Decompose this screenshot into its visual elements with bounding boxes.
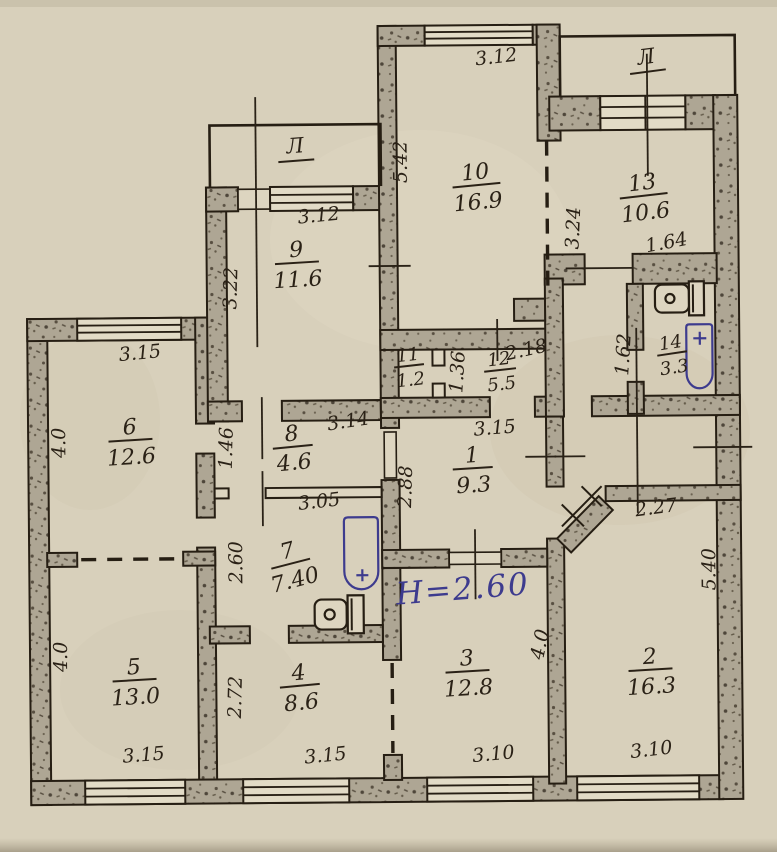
svg-text:Л: Л bbox=[284, 133, 305, 158]
svg-text:12.6: 12.6 bbox=[106, 444, 156, 472]
dimension-label: 2.60 bbox=[225, 541, 247, 585]
dimension-label: 3.22 bbox=[219, 267, 242, 310]
svg-text:1: 1 bbox=[464, 443, 480, 469]
dimension-label: 3.10 bbox=[471, 741, 515, 767]
svg-text:4.6: 4.6 bbox=[275, 449, 313, 477]
svg-text:5: 5 bbox=[126, 655, 142, 681]
dimension-label: 3.15 bbox=[122, 743, 166, 768]
svg-text:11.6: 11.6 bbox=[273, 266, 323, 294]
svg-text:4: 4 bbox=[289, 660, 306, 686]
svg-text:8: 8 bbox=[283, 421, 299, 447]
svg-text:11: 11 bbox=[395, 344, 420, 367]
dimension-label: 4.0 bbox=[48, 428, 70, 459]
svg-text:13: 13 bbox=[627, 169, 658, 197]
toilet-icon bbox=[315, 595, 364, 633]
svg-text:2: 2 bbox=[641, 644, 657, 670]
svg-text:8.6: 8.6 bbox=[283, 689, 320, 717]
dimension-label: 3.15 bbox=[118, 340, 162, 366]
svg-text:10: 10 bbox=[460, 159, 490, 187]
toilet-icon bbox=[655, 281, 704, 315]
floor-plan-scan: 10 16.9 13 10.6 9 11.6 6 12.6 11 bbox=[0, 0, 777, 852]
svg-text:9.3: 9.3 bbox=[456, 472, 492, 499]
svg-text:16.9: 16.9 bbox=[453, 188, 504, 218]
dimension-label: 5.42 bbox=[390, 141, 412, 184]
svg-text:9: 9 bbox=[288, 237, 304, 263]
floor-plan: 10 16.9 13 10.6 9 11.6 6 12.6 11 bbox=[0, 0, 777, 852]
dimension-label: 1.62 bbox=[611, 333, 636, 377]
dimension-label: 2.72 bbox=[224, 676, 247, 720]
dimension-label: 4.0 bbox=[50, 642, 72, 673]
dimension-label: 1.46 bbox=[215, 427, 238, 470]
svg-text:13.0: 13.0 bbox=[110, 684, 160, 712]
svg-text:12.8: 12.8 bbox=[443, 675, 493, 703]
svg-text:3.3: 3.3 bbox=[659, 355, 690, 380]
dimension-label: 2.88 bbox=[394, 465, 417, 509]
svg-text:1.2: 1.2 bbox=[395, 368, 426, 392]
dimension-label: 1.36 bbox=[445, 350, 470, 394]
dimension-label: 5.40 bbox=[698, 548, 720, 591]
dimension-label: 3.15 bbox=[473, 415, 517, 440]
svg-text:6: 6 bbox=[122, 415, 138, 441]
svg-text:16.3: 16.3 bbox=[626, 673, 676, 701]
svg-text:Л: Л bbox=[635, 44, 657, 70]
dimension-label: 3.24 bbox=[561, 206, 585, 249]
svg-text:5.5: 5.5 bbox=[486, 372, 517, 396]
dimension-label: 3.12 bbox=[297, 203, 341, 229]
svg-text:3: 3 bbox=[459, 646, 475, 672]
dimension-label: 3.15 bbox=[303, 743, 347, 769]
